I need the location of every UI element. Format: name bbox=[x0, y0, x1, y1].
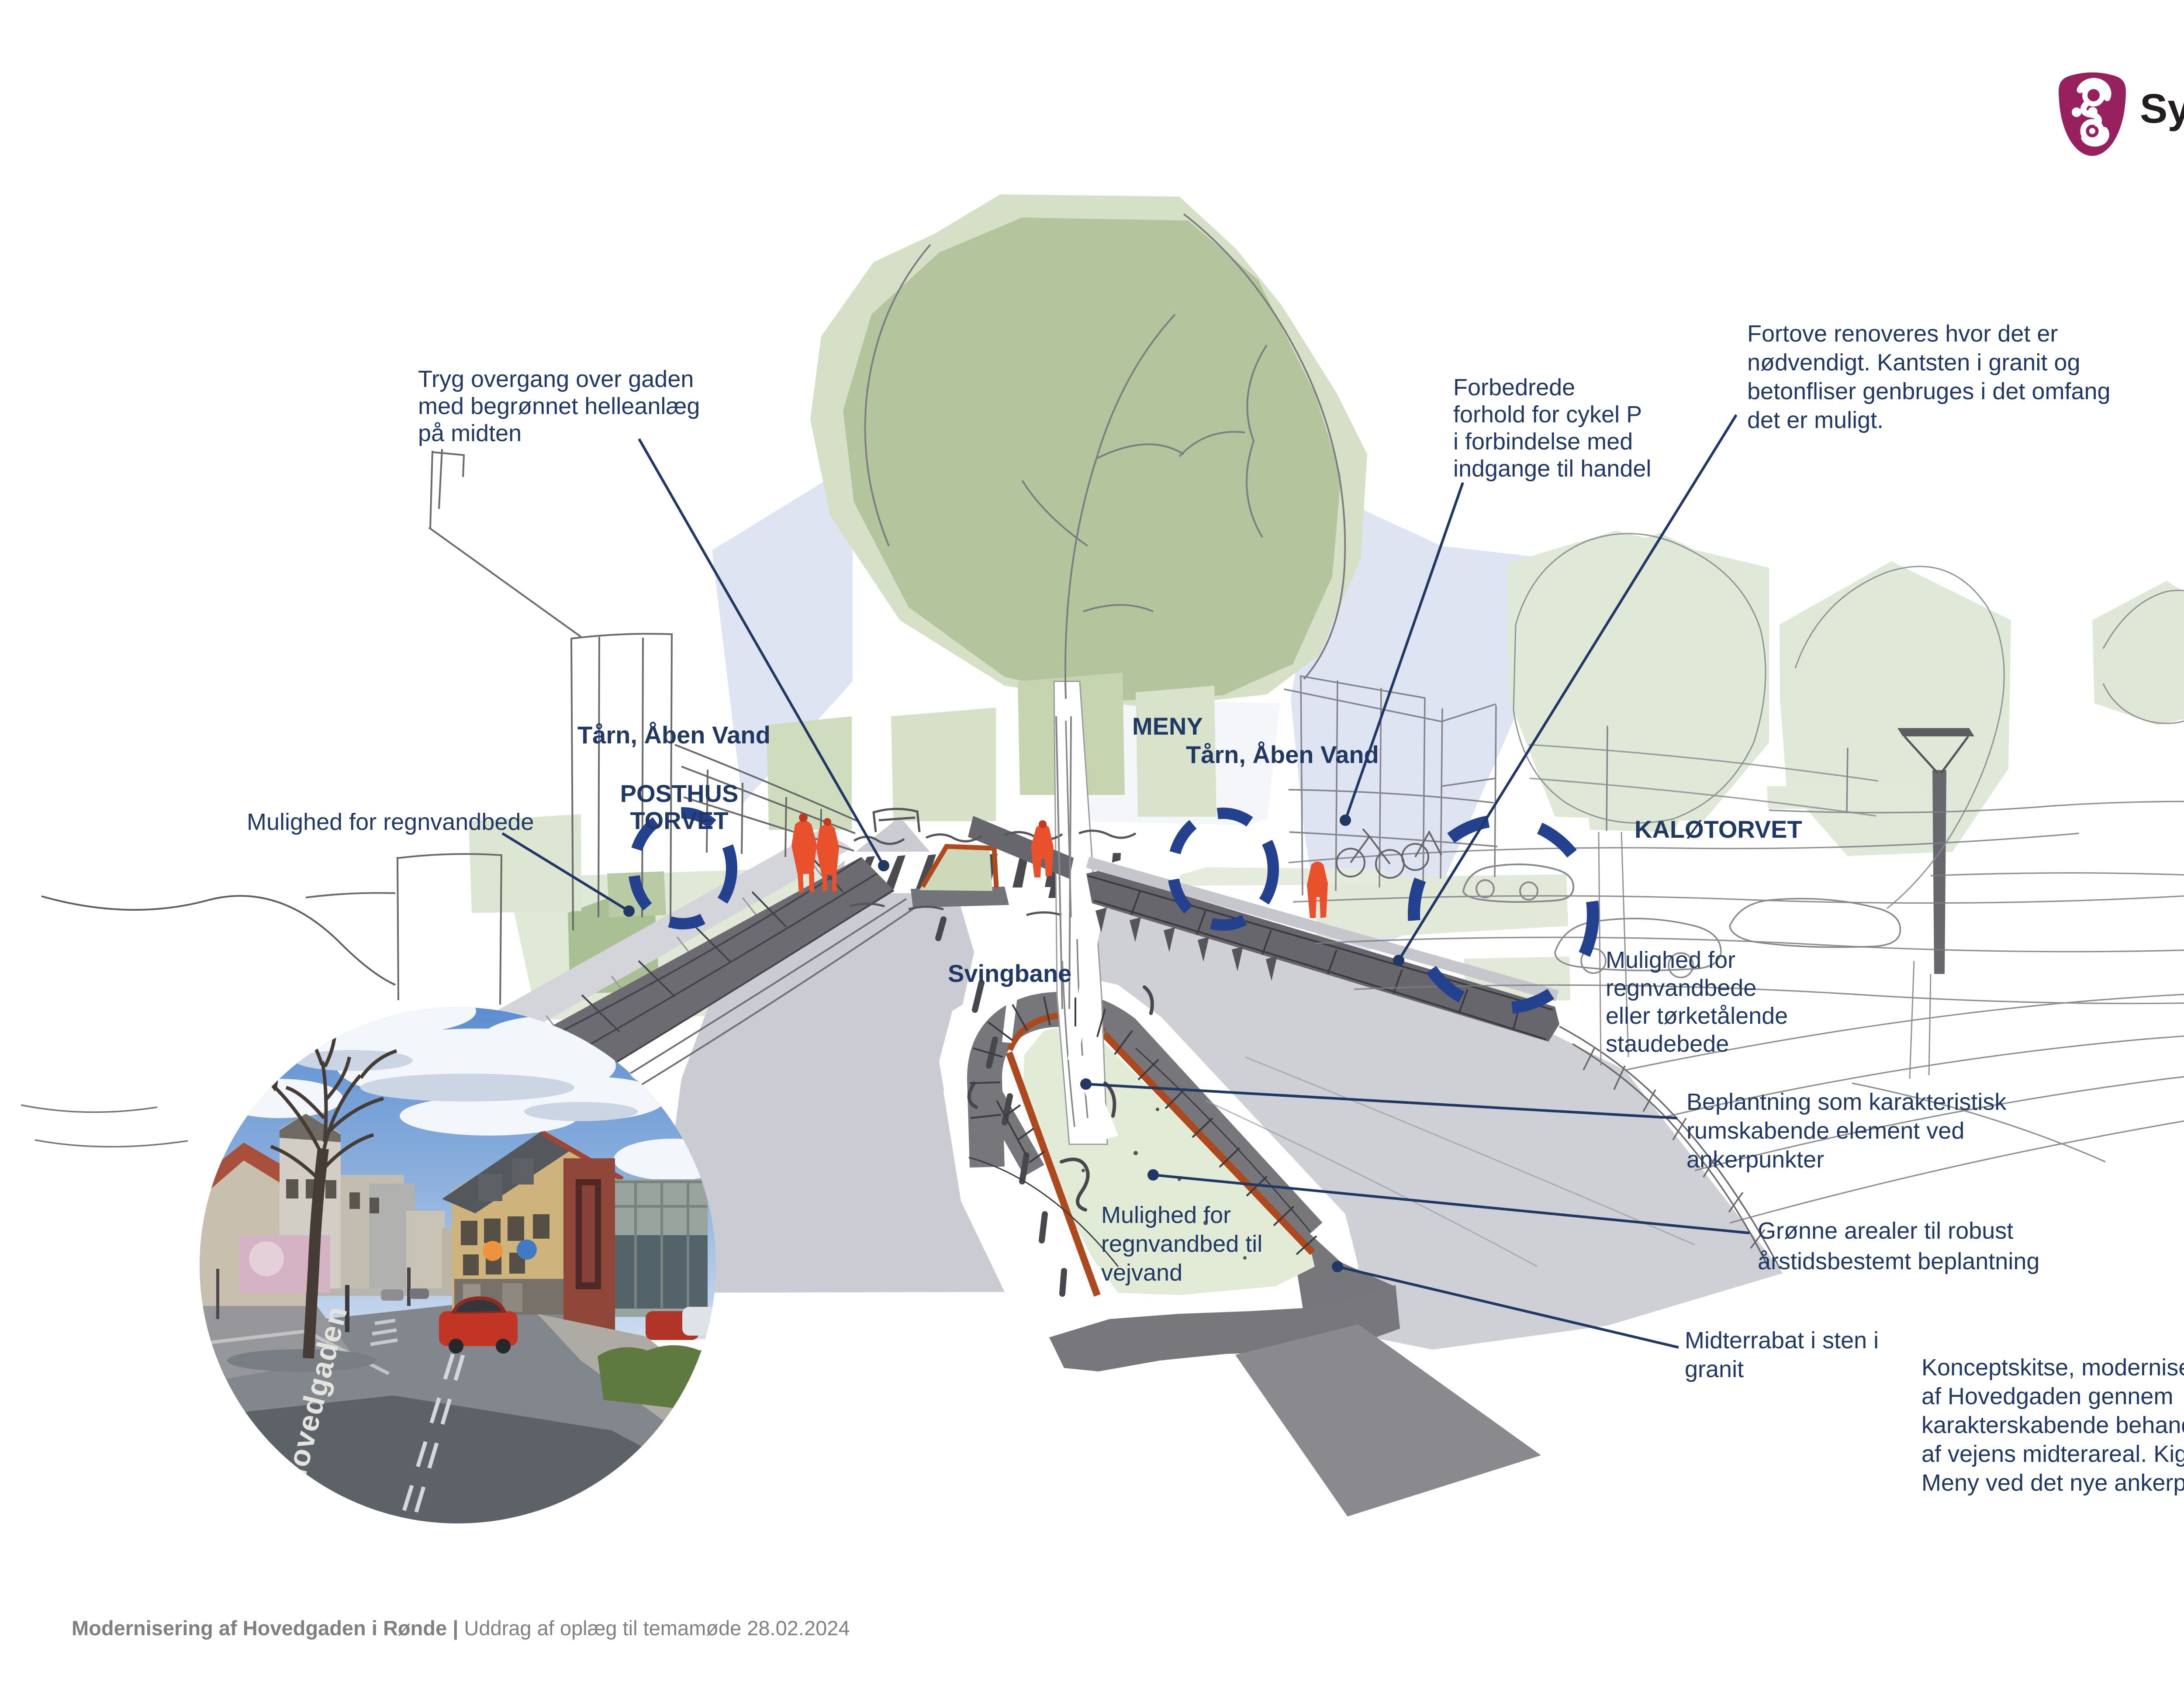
svg-text:forhold for cykel P: forhold for cykel P bbox=[1453, 401, 1642, 428]
svg-text:i forbindelse med: i forbindelse med bbox=[1453, 428, 1633, 455]
svg-text:Mulighed for: Mulighed for bbox=[1101, 1202, 1231, 1228]
svg-text:Modernisering af Hovedgaden i: Modernisering af Hovedgaden i Rønde | Ud… bbox=[72, 1616, 850, 1640]
svg-text:Beplantning som karakteristisk: Beplantning som karakteristisk bbox=[1686, 1089, 2007, 1115]
svg-text:Tryg overgang over gaden: Tryg overgang over gaden bbox=[418, 366, 694, 392]
svg-text:vejvand: vejvand bbox=[1101, 1260, 1182, 1286]
svg-text:regnvandbed til: regnvandbed til bbox=[1101, 1231, 1262, 1257]
svg-text:Forbedrede: Forbedrede bbox=[1453, 374, 1575, 401]
svg-text:Meny ved det nye ankerpunkt.: Meny ved det nye ankerpunkt. bbox=[1921, 1470, 2184, 1496]
svg-text:ankerpunkter: ankerpunkter bbox=[1686, 1147, 1824, 1173]
svg-text:eller tørketålende: eller tørketålende bbox=[1606, 1003, 1788, 1029]
svg-text:af Hovedgaden gennem: af Hovedgaden gennem bbox=[1921, 1383, 2173, 1409]
svg-text:karakterskabende behandling: karakterskabende behandling bbox=[1921, 1412, 2184, 1438]
svg-text:TORVET: TORVET bbox=[630, 807, 728, 834]
svg-text:granit: granit bbox=[1685, 1356, 1744, 1382]
svg-text:med begrønnet helleanlæg: med begrønnet helleanlæg bbox=[418, 393, 700, 419]
svg-text:Fortove renoveres hvor det er: Fortove renoveres hvor det er bbox=[1747, 321, 2058, 347]
svg-text:Tårn, Åben Vand: Tårn, Åben Vand bbox=[577, 721, 771, 749]
svg-text:det er muligt.: det er muligt. bbox=[1747, 407, 1883, 433]
svg-text:Mulighed for regnvandbede: Mulighed for regnvandbede bbox=[247, 809, 534, 835]
svg-text:Grønne arealer til robust: Grønne arealer til robust bbox=[1758, 1218, 2013, 1244]
svg-text:MENY: MENY bbox=[1132, 712, 1203, 740]
svg-text:indgange til handel: indgange til handel bbox=[1453, 456, 1651, 482]
svg-text:Svingbane: Svingbane bbox=[948, 960, 1071, 987]
svg-text:nødvendigt. Kantsten i granit: nødvendigt. Kantsten i granit og bbox=[1747, 349, 2080, 376]
svg-text:Mulighed for: Mulighed for bbox=[1606, 947, 1735, 973]
svg-text:på midten: på midten bbox=[418, 420, 522, 446]
svg-text:regnvandbede: regnvandbede bbox=[1606, 975, 1756, 1001]
svg-text:af vejens midterareal. Kig mod: af vejens midterareal. Kig mod bbox=[1921, 1441, 2184, 1467]
svg-text:KALØTORVET: KALØTORVET bbox=[1635, 815, 1802, 843]
svg-text:Tårn, Åben Vand: Tårn, Åben Vand bbox=[1186, 741, 1379, 768]
svg-text:årstidsbestemt beplantning: årstidsbestemt beplantning bbox=[1758, 1248, 2039, 1274]
svg-text:staudebede: staudebede bbox=[1606, 1031, 1729, 1057]
svg-text:betonfliser genbruges i det om: betonfliser genbruges i det omfang bbox=[1747, 378, 2111, 404]
svg-text:POSTHUS: POSTHUS bbox=[620, 780, 739, 807]
svg-text:Midterrabat i sten i: Midterrabat i sten i bbox=[1685, 1327, 1879, 1354]
svg-text:Syddjurs: Syddjurs bbox=[2140, 86, 2184, 132]
svg-text:Konceptskitse, moderniseringen: Konceptskitse, moderniseringen bbox=[1921, 1354, 2184, 1381]
svg-text:rumskabende element ved: rumskabende element ved bbox=[1686, 1118, 1964, 1144]
